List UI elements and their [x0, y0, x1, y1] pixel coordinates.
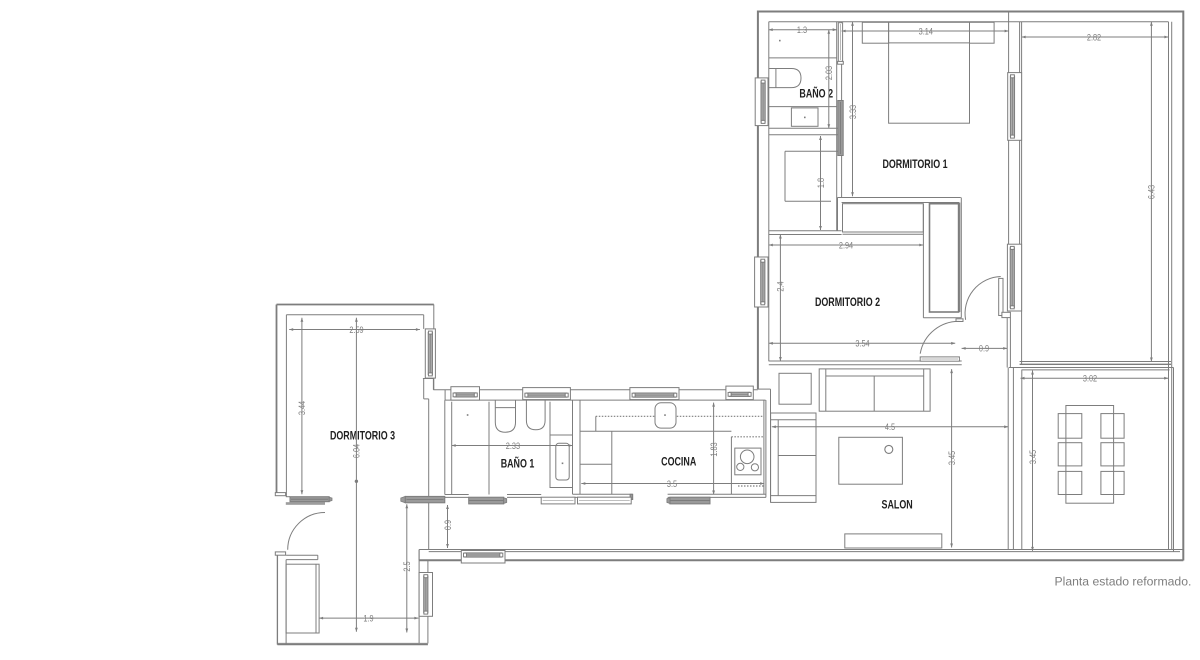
svg-text:2.82: 2.82 — [1087, 31, 1102, 42]
svg-text:3.33: 3.33 — [847, 105, 858, 120]
svg-text:4.5: 4.5 — [885, 421, 895, 432]
svg-text:6.04: 6.04 — [351, 444, 362, 459]
svg-text:1.9: 1.9 — [363, 612, 373, 623]
svg-text:2.4: 2.4 — [775, 281, 786, 291]
svg-text:6.43: 6.43 — [1146, 185, 1157, 200]
svg-text:Planta estado reformado.: Planta estado reformado. — [1055, 575, 1192, 589]
svg-text:DORMITORIO 1: DORMITORIO 1 — [882, 158, 947, 172]
svg-text:3.45: 3.45 — [1027, 450, 1038, 465]
svg-text:BAÑO 1: BAÑO 1 — [501, 456, 535, 471]
svg-text:DORMITORIO 2: DORMITORIO 2 — [815, 296, 880, 310]
svg-text:3.5: 3.5 — [667, 478, 677, 489]
svg-text:1.83: 1.83 — [708, 442, 719, 457]
svg-text:3.44: 3.44 — [296, 401, 307, 416]
svg-text:SALON: SALON — [882, 498, 913, 512]
svg-text:0.9: 0.9 — [979, 343, 989, 354]
svg-text:COCINA: COCINA — [661, 455, 696, 469]
svg-text:2.33: 2.33 — [506, 440, 521, 451]
svg-text:3.45: 3.45 — [946, 451, 957, 466]
svg-text:1.3: 1.3 — [797, 24, 807, 35]
svg-text:1.8: 1.8 — [815, 178, 826, 188]
svg-text:BAÑO 2: BAÑO 2 — [799, 86, 833, 101]
svg-text:2.94: 2.94 — [839, 239, 854, 250]
svg-text:3.54: 3.54 — [855, 338, 870, 349]
svg-text:DORMITORIO 3: DORMITORIO 3 — [330, 429, 395, 443]
svg-text:3.02: 3.02 — [1083, 373, 1098, 384]
svg-text:3.14: 3.14 — [919, 25, 934, 36]
svg-text:2.03: 2.03 — [823, 66, 834, 81]
svg-text:0.9: 0.9 — [442, 520, 453, 530]
svg-text:2.5: 2.5 — [401, 561, 412, 571]
